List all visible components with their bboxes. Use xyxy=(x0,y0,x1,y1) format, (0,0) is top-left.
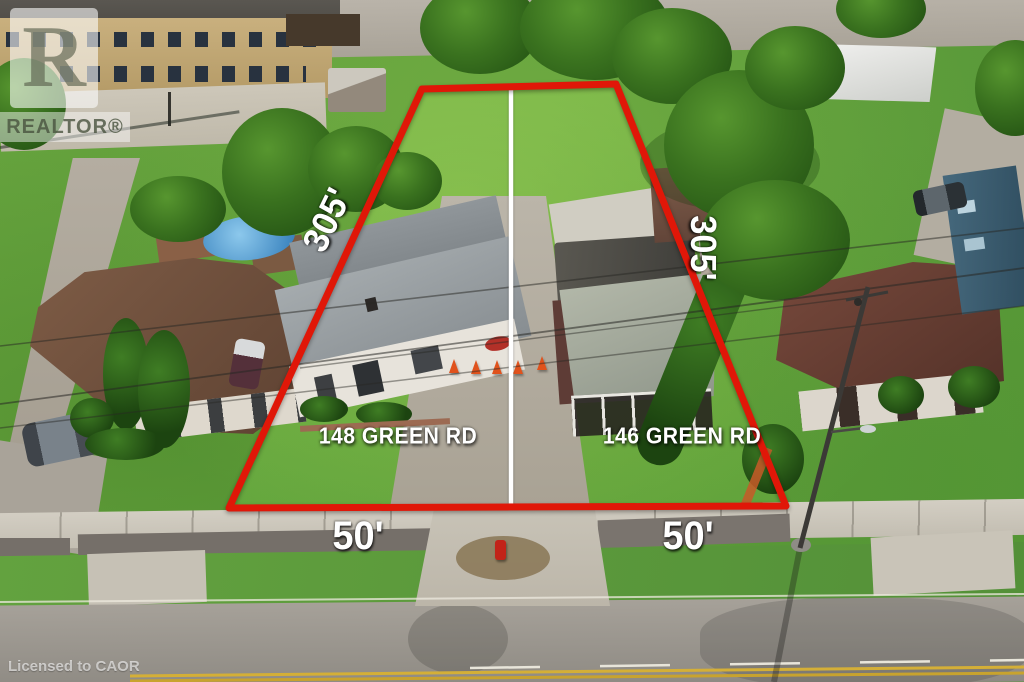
depth-label-right: 305' xyxy=(681,205,725,291)
realtor-wordmark-text: REALTOR® xyxy=(6,116,124,139)
realtor-logo-letter: R xyxy=(22,14,86,102)
license-text: Licensed to CAOR xyxy=(8,658,140,675)
frontage-label-left: 50' xyxy=(324,513,392,559)
address-label-left: 148 GREEN RD xyxy=(331,420,465,452)
realtor-wordmark: REALTOR® xyxy=(0,112,130,142)
annotation-overlay xyxy=(0,0,1024,682)
frontage-label-right: 50' xyxy=(654,513,722,559)
realtor-logo: R xyxy=(10,8,98,108)
aerial-photo: 305' 305' 148 GREEN RD 146 GREEN RD 50' … xyxy=(0,0,1024,682)
address-label-right: 146 GREEN RD xyxy=(615,420,749,452)
